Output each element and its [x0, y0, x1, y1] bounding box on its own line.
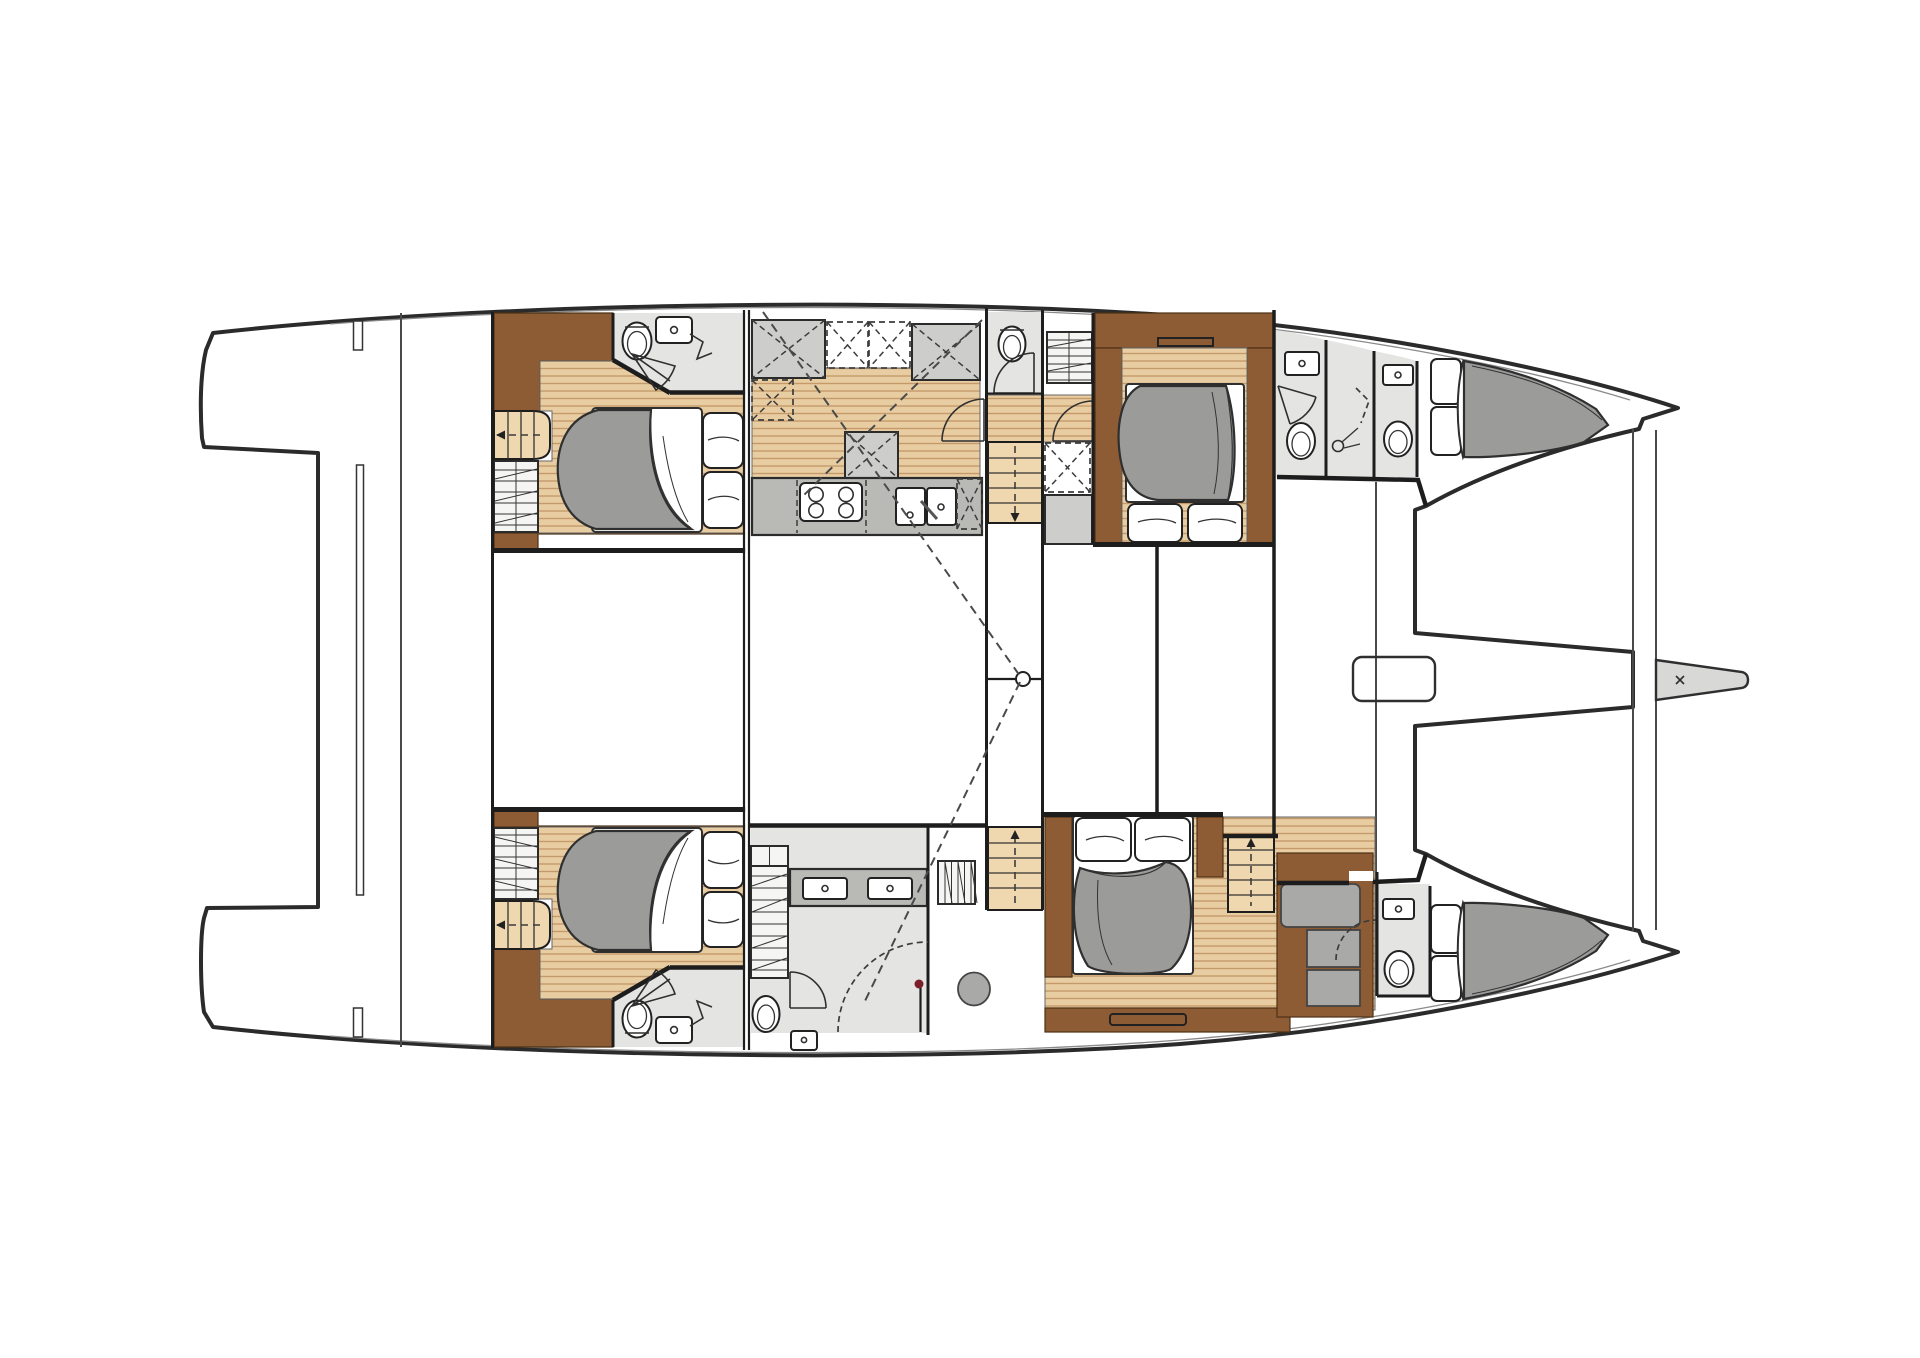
toilet: [1385, 951, 1414, 987]
seat: [1307, 970, 1360, 1006]
washbasin: [868, 878, 912, 899]
pillow: [1128, 504, 1182, 542]
pillow: [1188, 504, 1242, 542]
cabinet: [1045, 495, 1092, 544]
pouf: [958, 973, 990, 1006]
door-pivot: [915, 980, 924, 989]
side-locker: [1247, 348, 1274, 544]
stairs-up-starboard: [988, 827, 1042, 910]
door-opening: [1349, 871, 1373, 881]
cabinet-block: [494, 533, 538, 550]
hanging-locker: [494, 461, 538, 532]
pillow: [1431, 407, 1461, 455]
bow-berth-starboard: [1431, 903, 1608, 1001]
washbasin: [791, 1031, 817, 1050]
cabin-aft-starboard: [491, 810, 750, 1048]
floor-plan: [0, 0, 1920, 1358]
toilet: [1287, 423, 1315, 459]
under-bed-cabinet: [1045, 1008, 1290, 1032]
double-bed: [1073, 816, 1193, 974]
pillow: [1431, 956, 1461, 1001]
seat: [1307, 930, 1360, 967]
desk: [1281, 884, 1360, 927]
bed-frame: [1197, 817, 1223, 877]
owner-stairs: [1228, 835, 1274, 912]
galley-counter: [752, 478, 982, 535]
cabin-aft-port: [491, 313, 750, 551]
pillow: [1135, 818, 1190, 861]
stairs-down-port: [988, 442, 1042, 523]
toilet: [753, 996, 780, 1032]
headboard: [1095, 313, 1274, 348]
pillow: [1076, 818, 1131, 861]
pillow: [1431, 905, 1461, 953]
day-head-port: [987, 312, 1043, 394]
owner-bathroom: [750, 825, 986, 1050]
cockpit-door-track: [357, 465, 364, 895]
corridor-floor: [987, 395, 1093, 442]
owner-cabin: [1045, 816, 1376, 1032]
inner-gunwale-wall: [1277, 477, 1426, 506]
dressing-area: [938, 861, 990, 1006]
stair-landing: [986, 672, 1044, 686]
cabin-steps: [494, 411, 550, 459]
washbasin: [803, 878, 847, 899]
washbasin: [656, 317, 692, 343]
toilet: [1384, 422, 1412, 457]
owner-head: [1377, 872, 1430, 996]
bow-structure: [1353, 429, 1748, 931]
deck-slot-aft-port: [354, 321, 363, 350]
catamaran-floor-plan-page: [0, 0, 1920, 1358]
washbasin: [1383, 899, 1414, 919]
deck-slot-aft-starboard: [354, 1008, 363, 1037]
toilet: [999, 327, 1026, 362]
vanity: [790, 869, 927, 906]
owner-suite: [750, 816, 1430, 1050]
cabin-forward-vip: [1095, 313, 1274, 544]
bow-berth-port: [1431, 359, 1608, 457]
toilet: [623, 323, 652, 360]
washbasin: [1383, 365, 1413, 385]
hanging-locker: [751, 866, 788, 978]
bowsprit: [1656, 660, 1748, 700]
shelf-unit: [1047, 332, 1092, 383]
washbasin: [1285, 352, 1319, 375]
pillow: [1431, 359, 1461, 404]
bed-frame: [1045, 817, 1072, 977]
shelf-unit: [938, 861, 975, 904]
double-bed: [1119, 384, 1244, 542]
forward-heads-port: [1276, 330, 1426, 506]
galley-sink: [896, 488, 956, 525]
foredeck-hatch: [1353, 657, 1435, 701]
